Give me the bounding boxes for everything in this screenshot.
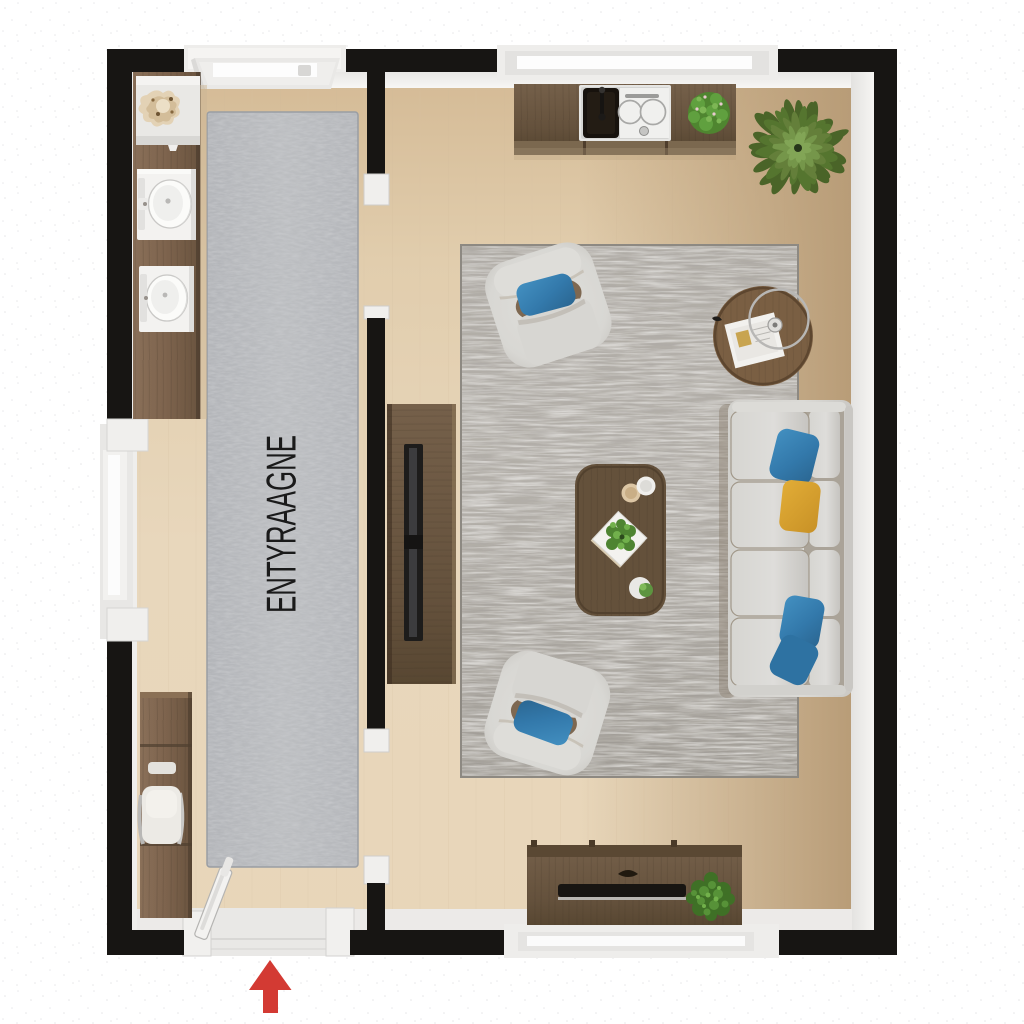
svg-text:ENTYRAAGNE: ENTYRAAGNE [258, 435, 305, 613]
